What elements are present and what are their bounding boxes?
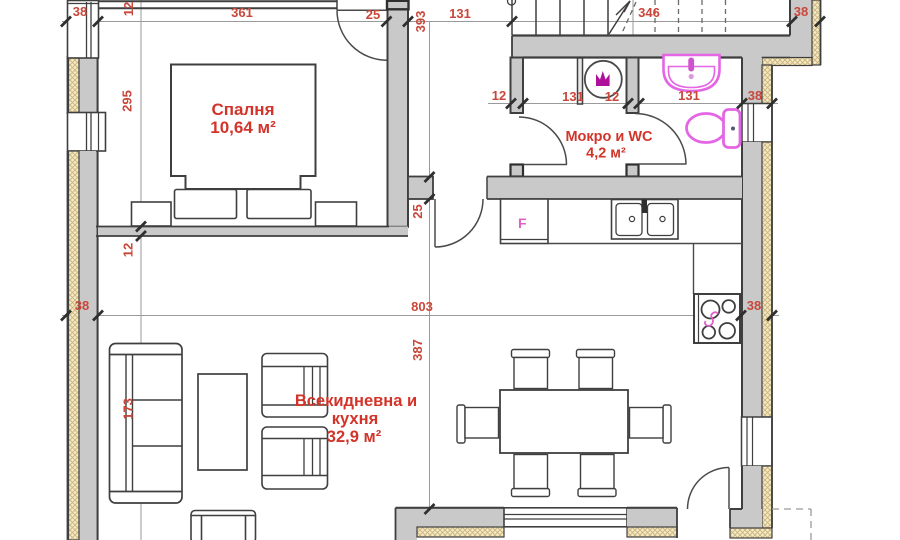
svg-text:131: 131 [562,89,584,104]
svg-text:38: 38 [75,298,89,313]
svg-text:4,2 м²: 4,2 м² [586,146,626,162]
svg-text:10,64 м²: 10,64 м² [210,118,276,137]
svg-text:25: 25 [410,204,425,218]
svg-text:361: 361 [231,5,253,20]
svg-text:38: 38 [73,4,87,19]
svg-text:295: 295 [120,90,135,112]
svg-text:Спалня: Спалня [212,100,275,119]
svg-text:38: 38 [748,88,762,103]
svg-text:25: 25 [366,7,380,22]
svg-text:173: 173 [121,398,136,420]
svg-text:803: 803 [411,299,433,314]
svg-text:131: 131 [449,6,471,21]
svg-text:12: 12 [121,2,136,16]
svg-text:346: 346 [638,5,660,20]
svg-text:38: 38 [747,298,761,313]
svg-text:393: 393 [413,11,428,33]
svg-text:131: 131 [678,88,700,103]
svg-text:12: 12 [121,243,136,257]
svg-text:38: 38 [794,4,808,19]
svg-text:12: 12 [492,88,506,103]
svg-text:Всекидневна и: Всекидневна и [295,392,417,410]
svg-text:12: 12 [605,89,619,104]
svg-text:кухня: кухня [332,410,378,428]
svg-text:F: F [518,215,527,231]
svg-text:32,9 м²: 32,9 м² [327,428,382,446]
svg-text:387: 387 [410,339,425,361]
svg-text:Мокро и WC: Мокро и WC [565,129,653,145]
